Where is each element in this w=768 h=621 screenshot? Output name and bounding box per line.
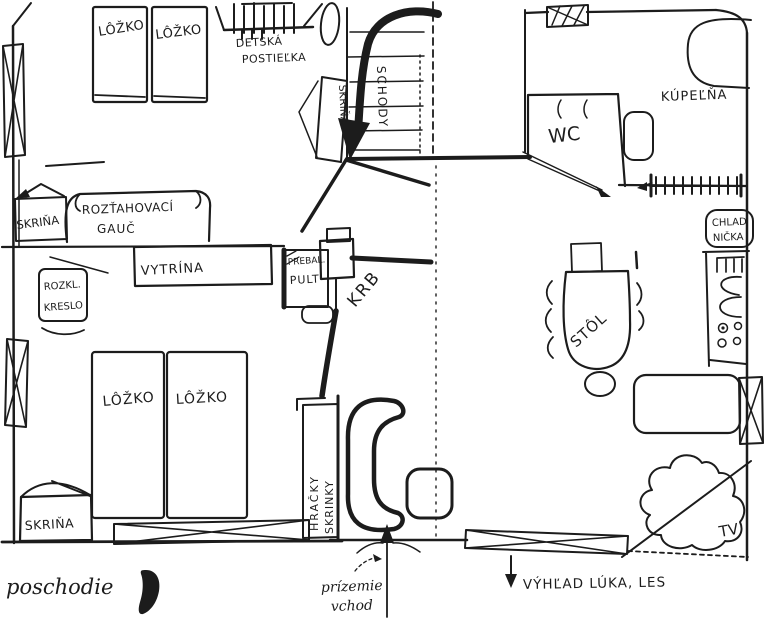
sofa xyxy=(348,400,403,530)
upper-bed-2: LÔŽKO xyxy=(152,7,207,102)
bench xyxy=(634,375,740,433)
folding-armchair: ROZKL. KRESLO xyxy=(39,257,108,334)
door-leaf xyxy=(319,2,341,46)
lower-bed-1: LÔŽKO xyxy=(92,352,164,518)
baby-crib: DETSKÁ POSTIEĽKA xyxy=(216,3,322,66)
pullout-couch: ROZŤAHOVACÍ GAUČ xyxy=(66,191,211,242)
lower-bed-1-label: LÔŽKO xyxy=(102,387,156,409)
toy-cabinet-label-line2: HRAČKY xyxy=(308,475,321,531)
sink xyxy=(720,277,741,317)
window-top-right xyxy=(547,5,588,27)
entrance-label-line1: prízemie xyxy=(321,578,383,596)
wc-label: WC xyxy=(547,123,581,148)
couch-label-line1: ROZŤAHOVACÍ xyxy=(82,199,174,217)
wardrobe-upper: SKRIŇA xyxy=(15,184,67,241)
stairs-closet-label: SKRIŇA xyxy=(336,84,351,124)
wc-room: WC xyxy=(528,94,653,186)
stairs-closet: SKRIŇA xyxy=(299,77,351,162)
fridge-label-line1: CHLAD xyxy=(712,217,748,229)
faucet xyxy=(717,257,744,272)
floor-label: poschodie xyxy=(6,575,113,599)
upper-bed-1: LÔŽKO xyxy=(93,7,147,102)
window-right xyxy=(739,377,763,444)
stove-burners xyxy=(718,323,742,348)
crib-label-line1: DETSKÁ xyxy=(235,35,282,50)
floor-plan-sketch: LÔŽKO LÔŽKO DETSKÁ POSTIEĽKA SCHODY SKRI… xyxy=(0,0,768,621)
fireplace-label: KRB xyxy=(344,267,385,311)
window-bottom-right xyxy=(465,530,628,554)
radiator xyxy=(637,175,743,196)
stairs-label: SCHODY xyxy=(374,66,390,129)
toy-cabinet-label-line1: SKRINKY xyxy=(323,480,336,534)
fridge-label-line2: NIČKA xyxy=(713,230,744,244)
table-label: STÔL xyxy=(566,308,611,351)
armchair-label-line1: ROZKL. xyxy=(43,279,81,293)
ottoman xyxy=(407,469,452,518)
upper-bed-1-label: LÔŽKO xyxy=(97,17,145,40)
desk-label-line2: PULT xyxy=(289,272,320,287)
entrance-label-line2: vchod xyxy=(331,598,374,615)
floor-arrow-blob xyxy=(139,570,160,614)
stool xyxy=(585,372,615,396)
chair-marks-left xyxy=(546,281,553,358)
tv-corner: TV xyxy=(622,455,751,557)
display-cabinet: VYTRÍNA xyxy=(134,245,272,286)
hall-arrow xyxy=(523,152,611,197)
chair-marks-right xyxy=(637,283,644,330)
toilet xyxy=(624,112,653,160)
view-arrow xyxy=(505,556,517,588)
wardrobe-lower-label: SKRIŇA xyxy=(24,515,74,533)
changing-desk: PREBAĽ. PULT xyxy=(284,250,333,323)
dining-table: STÔL xyxy=(546,243,644,396)
tv-label: TV xyxy=(717,520,741,541)
lower-bed-2-label: LÔŽKO xyxy=(175,387,228,408)
bathroom-label: KÚPEĽŇA xyxy=(661,87,728,105)
kitchen-counter xyxy=(703,251,749,366)
window-left-bottom xyxy=(5,339,28,427)
wardrobe-upper-label: SKRIŇA xyxy=(16,212,60,232)
toy-cabinet: HRAČKY SKRINKY xyxy=(297,398,338,538)
wardrobe-lower: SKRIŇA xyxy=(20,481,92,541)
couch-label-line2: GAUČ xyxy=(97,221,136,236)
stairs-down-arrow xyxy=(358,11,438,132)
fireplace: KRB xyxy=(320,228,385,311)
stairs: SCHODY xyxy=(338,11,438,160)
bathroom: KÚPEĽŇA xyxy=(637,19,751,196)
display-cabinet-label: VYTRÍNA xyxy=(140,260,204,279)
floor-plan-canvas: LÔŽKO LÔŽKO DETSKÁ POSTIEĽKA SCHODY SKRI… xyxy=(0,0,768,621)
view-label: VÝHĽAD LÚKA, LES xyxy=(523,573,666,593)
bathtub xyxy=(688,19,751,88)
lower-bed-2: LÔŽKO xyxy=(167,352,247,518)
upper-bed-2-label: LÔŽKO xyxy=(155,21,203,43)
armchair-label-line2: KRESLO xyxy=(43,300,83,314)
crib-label-line2: POSTIEĽKA xyxy=(242,51,307,66)
